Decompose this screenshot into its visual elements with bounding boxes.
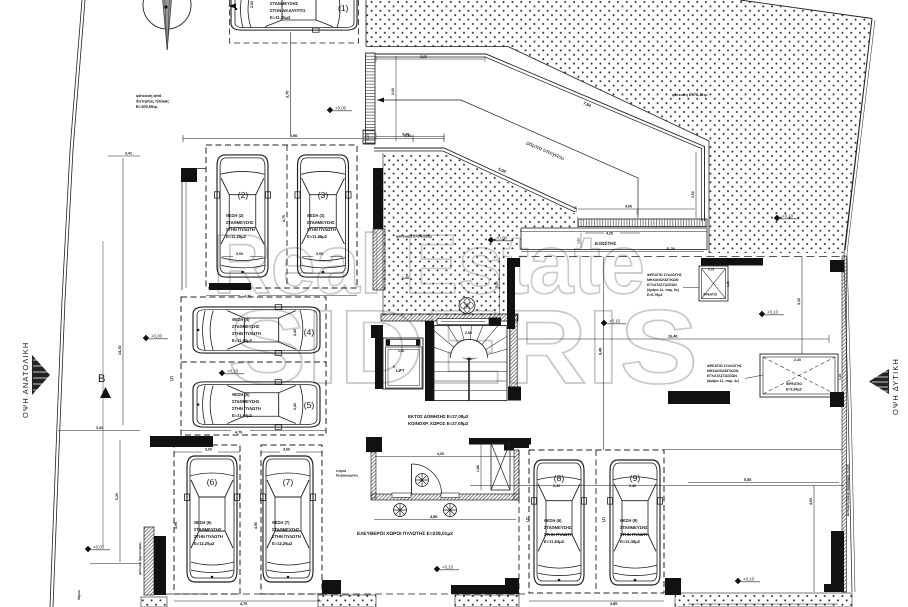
- svg-text:2,40: 2,40: [553, 484, 560, 488]
- svg-text:ΣΤΗΝ ΠΥΛΩΤΗ: ΣΤΗΝ ΠΥΛΩΤΗ: [194, 534, 223, 539]
- svg-text:1,40: 1,40: [398, 349, 404, 353]
- svg-text:ράμπα υπογείου: ράμπα υπογείου: [525, 139, 565, 162]
- svg-text:ΦΡΕΑΤΙΟ ΣΥΛΛΟΓΗΣ: ΦΡΕΑΤΙΟ ΣΥΛΛΟΓΗΣ: [647, 273, 682, 277]
- svg-text:φύτευση Ε=78,11τμ: φύτευση Ε=78,11τμ: [672, 92, 708, 97]
- svg-text:4,75: 4,75: [240, 602, 247, 606]
- svg-text:3,50: 3,50: [283, 448, 290, 452]
- svg-text:15,40: 15,40: [668, 335, 678, 339]
- svg-text:ΘΕΣΗ (5): ΘΕΣΗ (5): [232, 392, 250, 397]
- svg-text:3,00: 3,00: [495, 281, 499, 288]
- svg-text:πόρτα: πόρτα: [336, 469, 347, 473]
- svg-text:6,40: 6,40: [599, 348, 603, 355]
- svg-text:4,75: 4,75: [235, 431, 242, 435]
- svg-text:+0,00: +0,00: [151, 334, 163, 339]
- svg-text:2,50: 2,50: [316, 252, 323, 256]
- svg-text:3,00: 3,00: [391, 88, 395, 95]
- svg-text:ΣΤΑΘΜΕΥΣΗΣ: ΣΤΑΘΜΕΥΣΗΣ: [232, 399, 260, 404]
- svg-text:(2): (2): [238, 190, 249, 200]
- svg-text:ΣΤΑΘΜΕΥΣΗΣ: ΣΤΑΘΜΕΥΣΗΣ: [272, 527, 300, 532]
- svg-text:5: 5: [602, 517, 606, 524]
- svg-text:ΚΟΙΝΟΧΡ. ΧΩΡΟΣ Ε=27,08μ2: ΚΟΙΝΟΧΡ. ΧΩΡΟΣ Ε=27,08μ2: [408, 421, 469, 426]
- svg-text:5,85: 5,85: [744, 478, 751, 482]
- svg-text:ΜΗΧΑΝΟΛΟΓΙΚΩΝ: ΜΗΧΑΝΟΛΟΓΙΚΩΝ: [647, 278, 679, 282]
- svg-text:(8): (8): [554, 473, 565, 483]
- svg-text:4,05: 4,05: [625, 205, 632, 209]
- svg-text:Ε=2,64μ2: Ε=2,64μ2: [786, 388, 802, 392]
- svg-text:P,: P,: [393, 365, 396, 369]
- svg-text:ΣΤΑΘΜΕΥΣΗΣ: ΣΤΑΘΜΕΥΣΗΣ: [544, 525, 572, 530]
- svg-text:Ε=109,55τμ: Ε=109,55τμ: [136, 104, 158, 109]
- svg-text:ΦΡΕΑΤΙΟ ΣΥΛΛΟΓΗΣ: ΦΡΕΑΤΙΟ ΣΥΛΛΟΓΗΣ: [707, 364, 742, 368]
- svg-text:1,25: 1,25: [726, 281, 730, 287]
- svg-text:4,85: 4,85: [430, 515, 437, 519]
- svg-text:2,40: 2,40: [794, 358, 801, 362]
- svg-text:ΣΤΗΝ ΠΥΛΩΤΗ: ΣΤΗΝ ΠΥΛΩΤΗ: [272, 534, 301, 539]
- svg-text:ΕΛΕΥΘΕΡΟΙ ΧΩΡΟΙ ΠΥΛΩΤΗΣ Ε=229: ΕΛΕΥΘΕΡΟΙ ΧΩΡΟΙ ΠΥΛΩΤΗΣ Ε=229,01μ2: [357, 531, 453, 537]
- svg-text:1,40: 1,40: [402, 276, 409, 280]
- svg-text:(7): (7): [283, 477, 294, 487]
- svg-text:θωρακισμένη: θωρακισμένη: [336, 474, 358, 478]
- svg-text:φύτευση Ε=24,59τμ: φύτευση Ε=24,59τμ: [396, 234, 432, 239]
- svg-text:Ε=12,25μ2: Ε=12,25μ2: [194, 541, 215, 546]
- svg-text:Ε=11,64μ2: Ε=11,64μ2: [544, 539, 565, 544]
- svg-text:5: 5: [526, 517, 530, 524]
- svg-text:ΘΕΣΗ (7): ΘΕΣΗ (7): [272, 520, 290, 525]
- svg-text:ΣΤΗΝ ΠΥΛΩΤΗ: ΣΤΗΝ ΠΥΛΩΤΗ: [544, 532, 573, 537]
- svg-text:+0,10: +0,10: [743, 577, 755, 582]
- svg-text:ΣΤΑΘΜΕΥΣΗΣ: ΣΤΑΘΜΕΥΣΗΣ: [226, 220, 254, 225]
- svg-text:+0,10: +0,10: [609, 319, 621, 324]
- svg-text:2,40: 2,40: [293, 403, 297, 410]
- svg-text:ΕΓΚΑΤΑΣΤΑΣΕΩΝ: ΕΓΚΑΤΑΣΤΑΣΕΩΝ: [707, 374, 737, 378]
- svg-text:+0,10: +0,10: [782, 214, 794, 219]
- svg-text:3,66: 3,66: [420, 55, 427, 59]
- svg-text:ΟΨΗ ΔΥΤΙΚΗ: ΟΨΗ ΔΥΤΙΚΗ: [891, 358, 900, 415]
- svg-text:2,50: 2,50: [236, 252, 243, 256]
- svg-text:ΘΕΣΗ (3): ΘΕΣΗ (3): [307, 213, 325, 218]
- svg-text:14,10: 14,10: [118, 345, 122, 355]
- svg-text:ΘΕΣΗ (8): ΘΕΣΗ (8): [544, 518, 562, 523]
- svg-text:ΣΤΗΝ ΠΥΛΩΤΗ: ΣΤΗΝ ΠΥΛΩΤΗ: [232, 406, 261, 411]
- svg-text:4,20: 4,20: [437, 452, 444, 456]
- svg-text:Ε=11,88μ2: Ε=11,88μ2: [307, 234, 328, 239]
- svg-text:Ε=11,40μ2: Ε=11,40μ2: [620, 539, 641, 544]
- svg-text:4,85: 4,85: [610, 602, 617, 606]
- svg-text:ΜΗΧΑΝΟΛΟΓΙΚΩΝ: ΜΗΧΑΝΟΛΟΓΙΚΩΝ: [707, 369, 739, 373]
- svg-text:ΘΕΣΗ (9): ΘΕΣΗ (9): [620, 518, 638, 523]
- svg-text:Ε=12,25μ2: Ε=12,25μ2: [272, 541, 293, 546]
- svg-text:4,95: 4,95: [254, 522, 258, 529]
- svg-text:ΕΚΤΟΣ ΔΟΜΗΣΗΣ Ε=27,08μ2: ΕΚΤΟΣ ΔΟΜΗΣΗΣ Ε=27,08μ2: [408, 414, 469, 419]
- svg-text:3,41: 3,41: [96, 426, 103, 430]
- svg-text:ΦΡΕΑΤΙΟ: ΦΡΕΑΤΙΟ: [703, 293, 718, 297]
- svg-text:Ε=11,25μ2: Ε=11,25μ2: [226, 234, 247, 239]
- svg-text:5,20: 5,20: [115, 493, 119, 500]
- svg-text:1,10: 1,10: [366, 134, 370, 140]
- svg-text:0,75: 0,75: [708, 268, 714, 272]
- svg-text:ΣΤΗΝ ΠΥΛΩΤΗ: ΣΤΗΝ ΠΥΛΩΤΗ: [226, 227, 255, 232]
- svg-text:3,50: 3,50: [691, 191, 695, 198]
- svg-text:ΣΤΑΘΜΕΥΣΗΣ: ΣΤΑΘΜΕΥΣΗΣ: [232, 324, 260, 329]
- svg-text:διετησίας πλάκας: διετησίας πλάκας: [136, 99, 169, 104]
- svg-text:4,20: 4,20: [606, 232, 613, 236]
- svg-text:3,10: 3,10: [797, 298, 801, 305]
- svg-text:(άρθρο 11, παρ. 4ε): (άρθρο 11, παρ. 4ε): [707, 379, 739, 383]
- svg-text:ΟΨΗ ΑΝΑΤΟΛΙΚΗ: ΟΨΗ ΑΝΑΤΟΛΙΚΗ: [21, 342, 30, 418]
- svg-text:1,50: 1,50: [577, 238, 581, 244]
- svg-text:ΕΞΩΣΤΗΣ: ΕΞΩΣΤΗΣ: [595, 241, 617, 246]
- svg-text:(άρθρο 11, παρ. 6ε): (άρθρο 11, παρ. 6ε): [647, 288, 679, 292]
- svg-text:Ε=11,64μ2: Ε=11,64μ2: [232, 338, 253, 343]
- svg-text:3,70: 3,70: [286, 91, 290, 98]
- svg-text:5: 5: [170, 376, 174, 383]
- svg-text:(6): (6): [207, 477, 218, 487]
- svg-text:±0,00: ±0,00: [496, 236, 508, 241]
- svg-text:φύτευση ζαρντινιέρας: φύτευση ζαρντινιέρας: [138, 542, 142, 575]
- svg-text:Ε=0,79μ2: Ε=0,79μ2: [647, 293, 662, 297]
- svg-text:(4): (4): [304, 327, 315, 337]
- svg-text:(9): (9): [630, 473, 641, 483]
- svg-text:4,95: 4,95: [174, 522, 178, 529]
- svg-text:Διπλανή Άδεια Οικοδομής 9.103: Διπλανή Άδεια Οικοδομής 9.103: [846, 464, 850, 516]
- svg-text:+0,10: +0,10: [767, 310, 779, 315]
- svg-text:+0,10: +0,10: [227, 369, 239, 374]
- svg-text:ΘΕΣΗ (2): ΘΕΣΗ (2): [226, 213, 244, 218]
- svg-text:11,20: 11,20: [666, 247, 675, 251]
- svg-text:Πάρκο: Πάρκο: [77, 590, 81, 600]
- svg-text:Ε=11,64μ2: Ε=11,64μ2: [232, 413, 253, 418]
- svg-text:(3): (3): [318, 190, 329, 200]
- svg-text:ΣΤΟΝ ΑΚΑΛΥΠΤΟ: ΣΤΟΝ ΑΚΑΛΥΠΤΟ: [270, 8, 306, 13]
- svg-text:LIFT: LIFT: [396, 368, 405, 373]
- svg-text:6,80: 6,80: [290, 134, 297, 138]
- svg-text:ΣΤΗΝ ΠΥΛΩΤΗ: ΣΤΗΝ ΠΥΛΩΤΗ: [232, 331, 261, 336]
- svg-text:+0,10: +0,10: [442, 565, 454, 570]
- svg-text:+0,00: +0,00: [335, 106, 347, 111]
- svg-text:Ε=11,25μ2: Ε=11,25μ2: [270, 15, 291, 20]
- svg-text:3,41: 3,41: [125, 152, 132, 156]
- svg-text:ΘΕΣΗ (6): ΘΕΣΗ (6): [194, 520, 212, 525]
- svg-text:ΣΤΗΝ ΠΥΛΩΤΗ: ΣΤΗΝ ΠΥΛΩΤΗ: [307, 227, 336, 232]
- svg-text:(1): (1): [338, 3, 349, 13]
- svg-text:ΣΤΑΘΜΕΥΣΗΣ: ΣΤΑΘΜΕΥΣΗΣ: [194, 527, 222, 532]
- svg-text:B: B: [98, 373, 105, 385]
- svg-text:ΘΕΣΗ (4): ΘΕΣΗ (4): [232, 317, 250, 322]
- svg-text:4,60: 4,60: [809, 498, 813, 505]
- svg-text:ΣΤΑΘΜΕΥΣΗΣ: ΣΤΑΘΜΕΥΣΗΣ: [270, 1, 299, 6]
- svg-text:1,10: 1,10: [838, 374, 842, 380]
- svg-text:ΦΡΕΑΤΙΟ: ΦΡΕΑΤΙΟ: [786, 382, 802, 386]
- svg-text:φύτευση από: φύτευση από: [136, 93, 162, 98]
- svg-text:ΣΤΑΘΜΕΥΣΗΣ: ΣΤΑΘΜΕΥΣΗΣ: [620, 525, 648, 530]
- svg-text:2,30: 2,30: [404, 134, 411, 138]
- svg-text:4,75: 4,75: [282, 215, 286, 222]
- svg-text:(5): (5): [304, 400, 315, 410]
- svg-text:1,75: 1,75: [574, 206, 578, 212]
- svg-text:2,40: 2,40: [629, 484, 636, 488]
- svg-text:2,40: 2,40: [293, 329, 297, 336]
- svg-text:ΣΤΗΝ ΠΥΛΩΤΗ: ΣΤΗΝ ΠΥΛΩΤΗ: [620, 532, 649, 537]
- svg-text:ΣΤΑΘΜΕΥΣΗΣ: ΣΤΑΘΜΕΥΣΗΣ: [307, 220, 335, 225]
- svg-text:ΕΓΚΑΤΑΣΤΑΣΕΩΝ: ΕΓΚΑΤΑΣΤΑΣΕΩΝ: [647, 283, 677, 287]
- svg-text:3,50: 3,50: [205, 448, 212, 452]
- svg-text:2,50: 2,50: [250, 1, 254, 8]
- svg-text:1,88: 1,88: [476, 465, 480, 472]
- svg-text:2,90: 2,90: [465, 331, 472, 335]
